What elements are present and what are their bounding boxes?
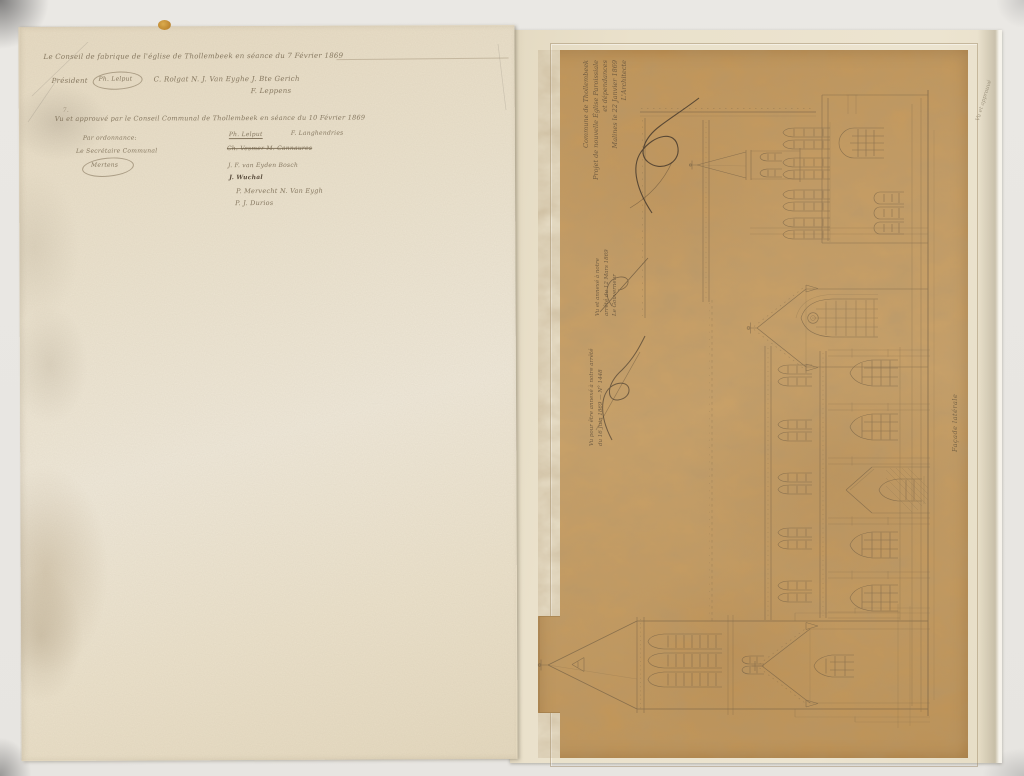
fabric-note-line: Le Gouverneur — [611, 226, 620, 316]
council-signature: P. J. Durios — [235, 199, 273, 207]
by-order-label: Par ordonnance: — [83, 135, 137, 142]
member-signature-2: F. Leppens — [251, 87, 292, 95]
communal-heading: Vu et approuvé par le Conseil Communal d… — [55, 114, 365, 123]
facade-label: Façade latérale — [942, 360, 961, 452]
fabric-note: Vu et annexé à notre arrêté du 12 Mars 1… — [594, 226, 620, 316]
title-block-line: et dépendances — [601, 60, 611, 218]
title-block: Commune de Thollembeek Projet de nouvell… — [582, 60, 630, 218]
title-block-line: Projet de nouvelle Église Paroissiale — [592, 60, 602, 218]
council-signature: Ph. Lelput — [229, 131, 263, 138]
secretary-label: Le Secrétaire Communal — [76, 147, 157, 154]
council-signature: F. Langhendries — [291, 130, 344, 137]
wax-spot — [158, 20, 171, 30]
title-block-line: Commune de Thollembeek — [582, 60, 592, 218]
register-line: Le Conseil de fabrique de l'église de Th… — [44, 52, 344, 61]
ordinal-mark: 7. — [63, 107, 69, 114]
council-signature: J. Wuchal — [229, 174, 263, 181]
title-block-line: L'Architecte — [620, 60, 630, 218]
fabric-note-line: arrêté du 12 Mars 1869 — [603, 226, 612, 316]
left-page: Le Conseil de fabrique de l'église de Th… — [18, 25, 517, 761]
royal-note-line: du 16 Juin 1869 — N° 1448 — [597, 334, 606, 446]
ruled-line — [337, 57, 509, 60]
council-signature: Ch. Vesmer M. Cannaures — [227, 145, 312, 152]
council-signature: P. Mervecht N. Van Eygh — [236, 187, 323, 195]
president-label: Président — [52, 77, 88, 85]
scan-background: Le Conseil de fabrique de l'église de Th… — [0, 0, 1024, 776]
president-signature: Ph. Lelput — [99, 76, 133, 83]
royal-note-line: Vu pour être annexé à notre arrêté — [588, 334, 597, 446]
member-signatures: C. Rolgat N. J. Van Eyghe J. Bte Gerich — [154, 75, 300, 84]
council-signature: J. F. van Eyden Bosch — [228, 162, 298, 169]
title-block-line: Malines le 22 Janvier 1869 — [611, 60, 621, 218]
facade-label-text: Façade latérale — [951, 394, 959, 452]
royal-note: Vu pour être annexé à notre arrêté du 16… — [588, 334, 605, 446]
secretary-signature: Mertens — [91, 162, 118, 169]
fabric-note-line: Vu et annexé à notre — [594, 226, 603, 316]
